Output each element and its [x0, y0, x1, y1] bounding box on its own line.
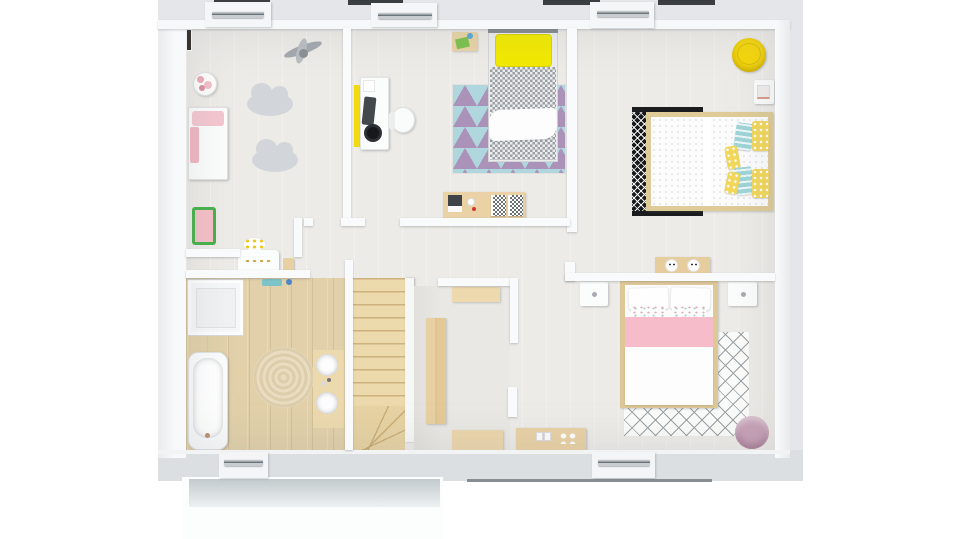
wall-kidsroom-bedroom1 [567, 28, 577, 232]
dormer-bar-3 [597, 10, 649, 17]
wall-exterior-right [775, 20, 790, 458]
bottom-window-bar-1 [224, 459, 263, 466]
wall-closet-top [438, 278, 513, 286]
wall-nursery-bottom [186, 249, 240, 257]
wall-bathroom-top [186, 270, 310, 278]
wall-closet-right-lower [508, 387, 517, 417]
wall-exterior-left [158, 20, 186, 458]
dormer-cap-4 [658, 0, 715, 5]
wall-bathroom-stairs [345, 260, 353, 450]
wall-nursery-corner [294, 218, 302, 257]
wall-nursery-kidsroom [343, 28, 351, 218]
wall-hall-stub [304, 218, 313, 226]
floor-plan [0, 0, 960, 539]
lower-level-roof-glass-band [189, 479, 440, 507]
bottom-window-bar-2 [598, 459, 650, 466]
lower-level-roofline-right [467, 479, 712, 482]
wall-hall-mid [341, 218, 365, 226]
dormer-bar-1 [212, 11, 264, 18]
wall-hall-long [400, 218, 570, 226]
wall-bedroom1-bedroom2 [565, 273, 775, 281]
interior-ambient-shadow [186, 28, 775, 450]
dormer-bar-2 [378, 12, 432, 19]
wall-closet-right-upper [510, 278, 518, 343]
